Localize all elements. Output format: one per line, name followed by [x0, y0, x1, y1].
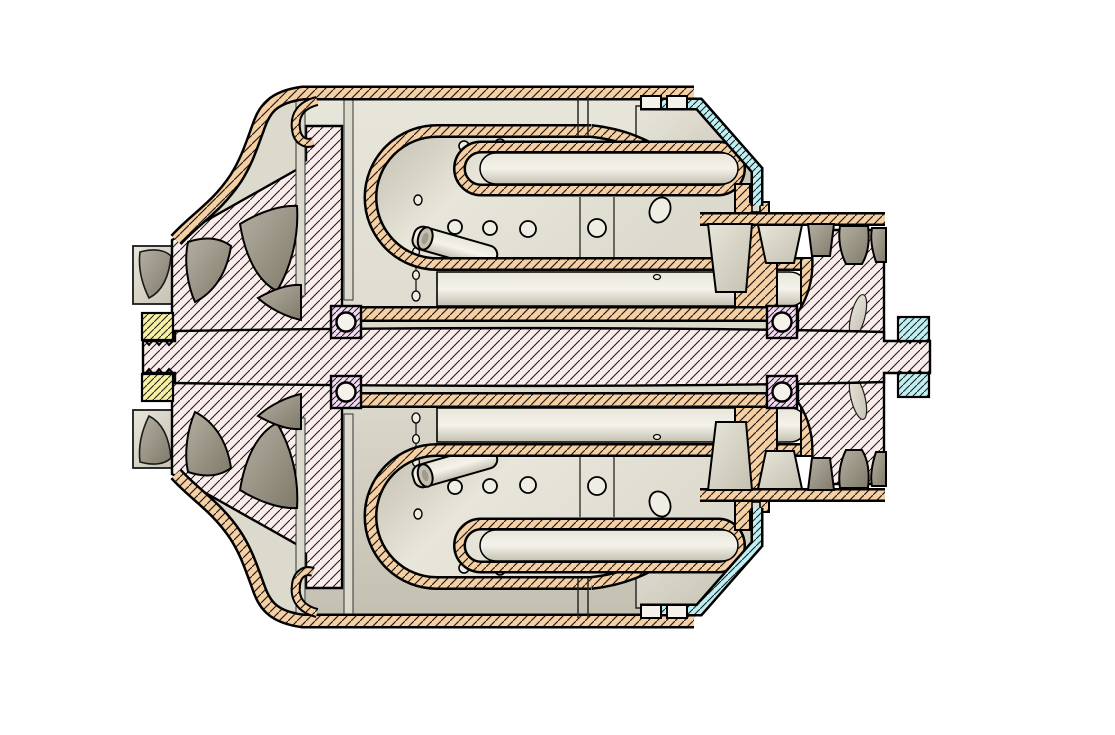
engine-cross-section-diagram	[0, 0, 1115, 735]
bearing-ball	[773, 313, 792, 332]
bearing-ball	[337, 313, 356, 332]
turbine-blade	[839, 226, 869, 264]
diffuser-wall	[344, 98, 353, 300]
shaft-section	[143, 328, 930, 386]
nozzle-vane	[708, 422, 752, 490]
shaft-nut-left	[142, 374, 173, 401]
shaft-nut-left	[142, 313, 173, 340]
inner-duct-bore	[480, 153, 738, 184]
inner-duct-bore	[480, 530, 738, 561]
diffuser-wall	[344, 414, 353, 616]
turbine-blade	[871, 452, 886, 486]
duct-notch	[641, 605, 661, 618]
nozzle-vane	[808, 224, 834, 256]
duct-notch	[641, 96, 661, 109]
nozzle-vane	[708, 224, 752, 292]
duct-notch	[667, 605, 687, 618]
tube-hole	[654, 435, 661, 440]
duct-notch	[667, 96, 687, 109]
turbine-blade	[839, 450, 869, 488]
diagram-canvas	[0, 0, 1115, 735]
rotor-shaft	[143, 328, 930, 386]
nozzle-vane	[758, 225, 802, 263]
shaft-nut-right	[898, 373, 929, 397]
turbine-blade	[871, 228, 886, 262]
bearing-ball	[773, 383, 792, 402]
nozzle-vane	[808, 458, 834, 490]
bearing-ball	[337, 383, 356, 402]
shaft-nut-right	[898, 317, 929, 341]
nozzle-vane	[758, 451, 802, 489]
tube-hole	[654, 275, 661, 280]
